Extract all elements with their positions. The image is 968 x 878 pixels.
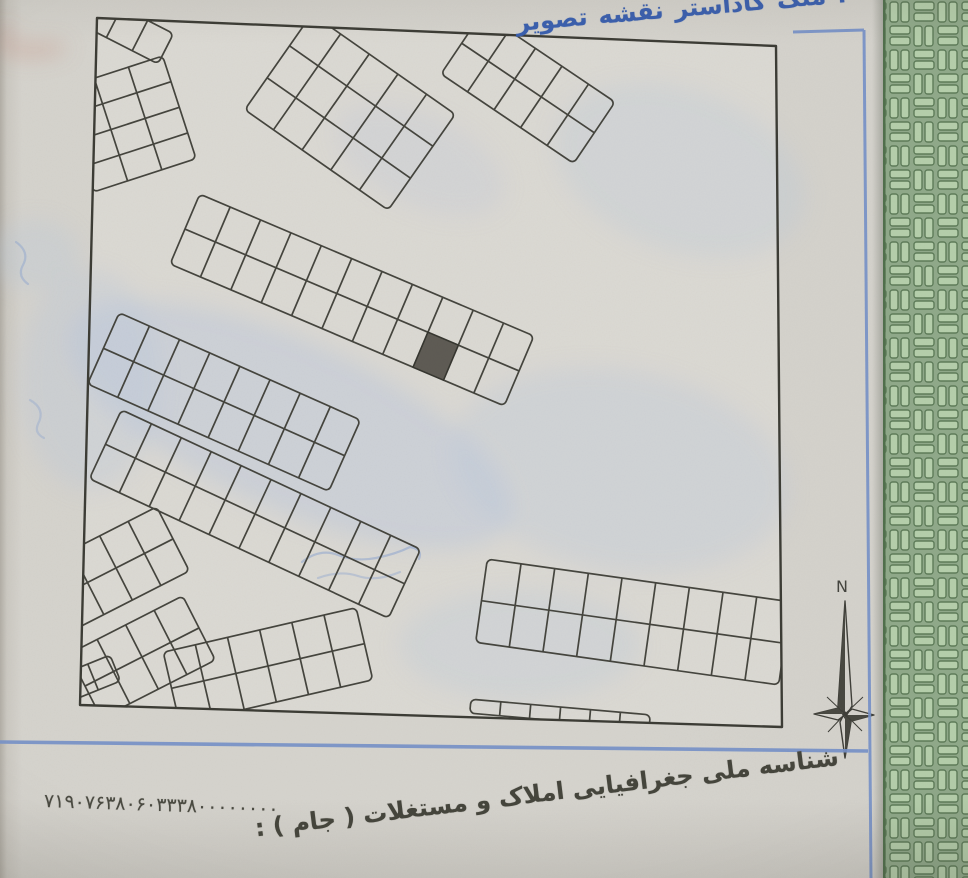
map-title-word: کاداستر: [673, 0, 767, 23]
map-title-word: تصویر: [515, 3, 589, 37]
map-title-word: نقشه: [597, 0, 664, 30]
map-title-word: :: [836, 0, 848, 9]
map-title-word: ملک: [776, 0, 827, 14]
deed-document-page: N تصویرنقشهکاداسترملک:: [0, 0, 968, 878]
